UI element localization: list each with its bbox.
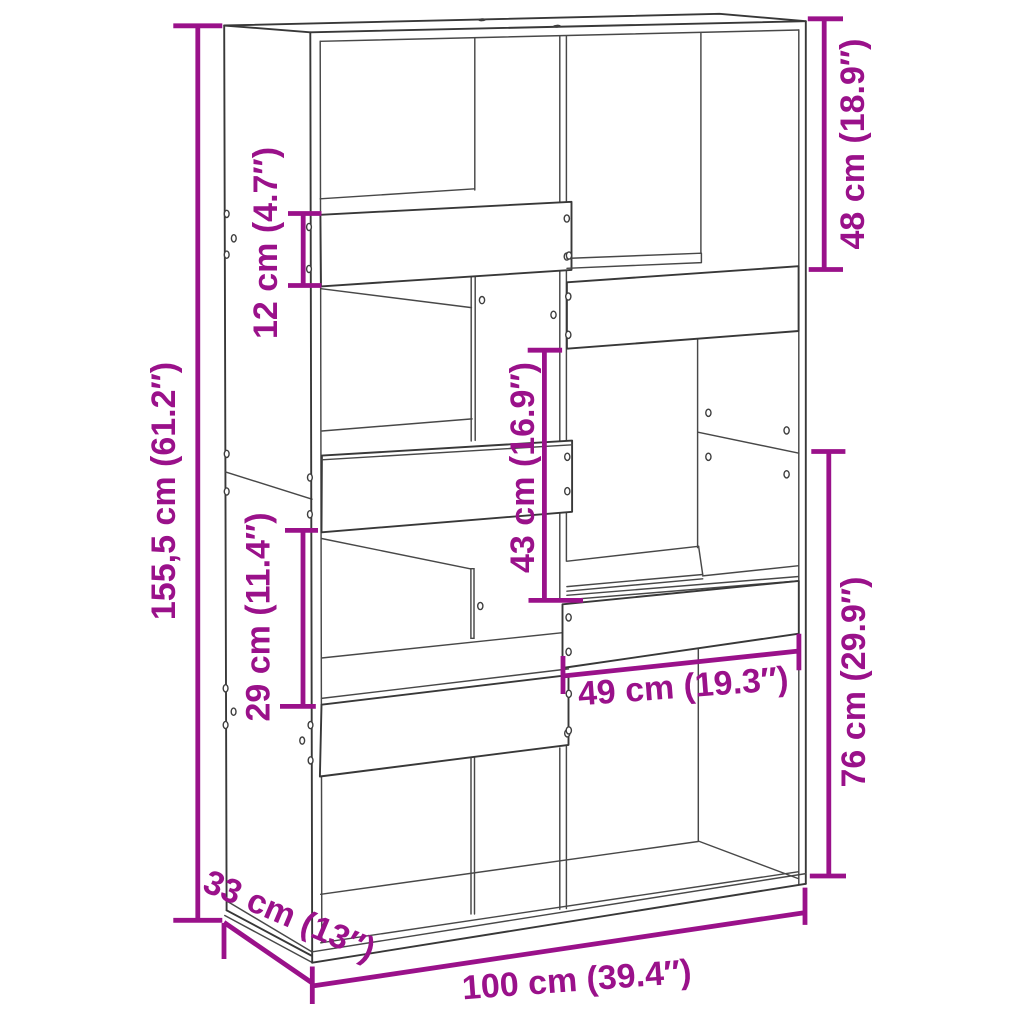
svg-text:12 cm (4.7″): 12 cm (4.7″) [247,147,285,339]
svg-text:43 cm (16.9″): 43 cm (16.9″) [504,362,542,573]
svg-text:76 cm (29.9″): 76 cm (29.9″) [835,577,873,788]
svg-text:155,5 cm (61.2″): 155,5 cm (61.2″) [145,362,183,620]
svg-text:48 cm (18.9″): 48 cm (18.9″) [834,39,872,250]
svg-text:29 cm (11.4″): 29 cm (11.4″) [240,512,278,721]
